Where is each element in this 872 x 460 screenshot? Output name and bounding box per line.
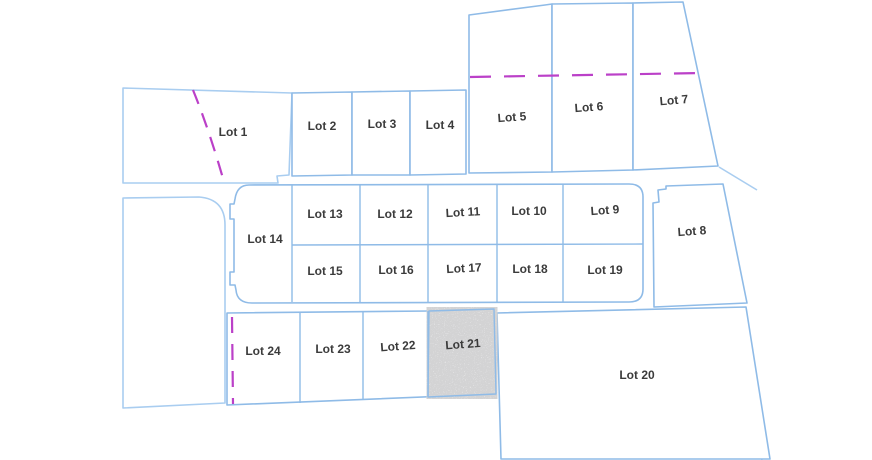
stipple-layer	[428, 309, 496, 397]
lot-6-label: Lot 6	[574, 99, 604, 115]
lot-8-label: Lot 8	[677, 223, 707, 239]
lot-11-label: Lot 11	[445, 204, 481, 220]
lot-1-boundary	[123, 88, 292, 183]
lot-16-label: Lot 16	[378, 263, 414, 277]
lot-5-boundary	[469, 4, 552, 173]
lot-15-label: Lot 15	[307, 264, 343, 278]
lot-2-boundary	[292, 92, 352, 176]
lot-24-label: Lot 24	[245, 344, 281, 358]
plat-map: Lot 1Lot 2Lot 3Lot 4Lot 5Lot 6Lot 7Lot 8…	[0, 0, 872, 460]
lot-7-boundary	[633, 2, 718, 170]
lot-12-label: Lot 12	[377, 207, 413, 221]
lot-1-label: Lot 1	[219, 125, 248, 139]
lot-4-label: Lot 4	[426, 118, 455, 132]
lot-20-label: Lot 20	[619, 368, 655, 382]
lot-19-label: Lot 19	[587, 263, 623, 277]
lot-4-boundary	[410, 90, 466, 175]
lot-2-label: Lot 2	[308, 119, 337, 133]
lot-3-label: Lot 3	[368, 117, 397, 131]
lot-6-boundary	[552, 3, 633, 172]
lot-23-label: Lot 23	[315, 342, 351, 356]
lot-5-label: Lot 5	[497, 109, 527, 125]
lot-14-label: Lot 14	[247, 232, 283, 246]
lot-10-label: Lot 10	[511, 204, 547, 218]
plat-map-svg: Lot 1Lot 2Lot 3Lot 4Lot 5Lot 6Lot 7Lot 8…	[0, 0, 872, 460]
lot-7-label: Lot 7	[659, 92, 689, 108]
lot-20-boundary	[497, 307, 770, 459]
lot-8-boundary	[653, 184, 747, 307]
lot-13-label: Lot 13	[307, 207, 343, 221]
lot-22-label: Lot 22	[380, 338, 417, 354]
lot-21-stipple	[428, 309, 496, 397]
west-parcel	[123, 197, 225, 408]
lot-17-label: Lot 17	[446, 260, 482, 276]
lot-21-label: Lot 21	[445, 336, 482, 352]
northeast-boundary-segment	[719, 167, 757, 190]
lot-3-boundary	[352, 91, 410, 175]
lot-9-label: Lot 9	[590, 202, 620, 218]
lot-18-label: Lot 18	[512, 262, 548, 276]
